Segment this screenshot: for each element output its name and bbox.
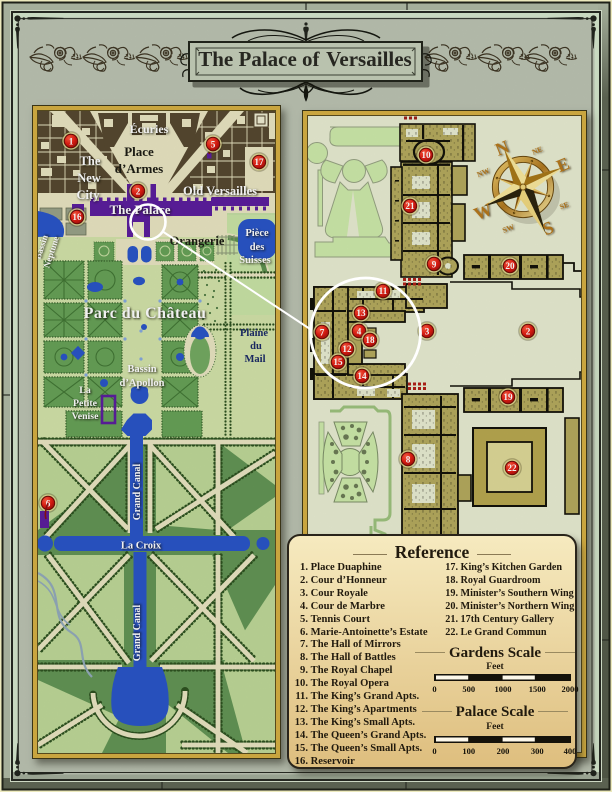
svg-text:300: 300 (531, 746, 544, 756)
svg-text:100: 100 (462, 746, 475, 756)
svg-text:0: 0 (432, 684, 436, 694)
svg-text:500: 500 (462, 684, 475, 694)
svg-text:1000: 1000 (495, 684, 512, 694)
svg-text:The Palace of Versailles: The Palace of Versailles (198, 47, 411, 71)
svg-text:400: 400 (564, 746, 577, 756)
svg-text:1500: 1500 (529, 684, 546, 694)
svg-text:0: 0 (432, 746, 436, 756)
svg-text:200: 200 (497, 746, 510, 756)
svg-text:2000: 2000 (562, 684, 579, 694)
